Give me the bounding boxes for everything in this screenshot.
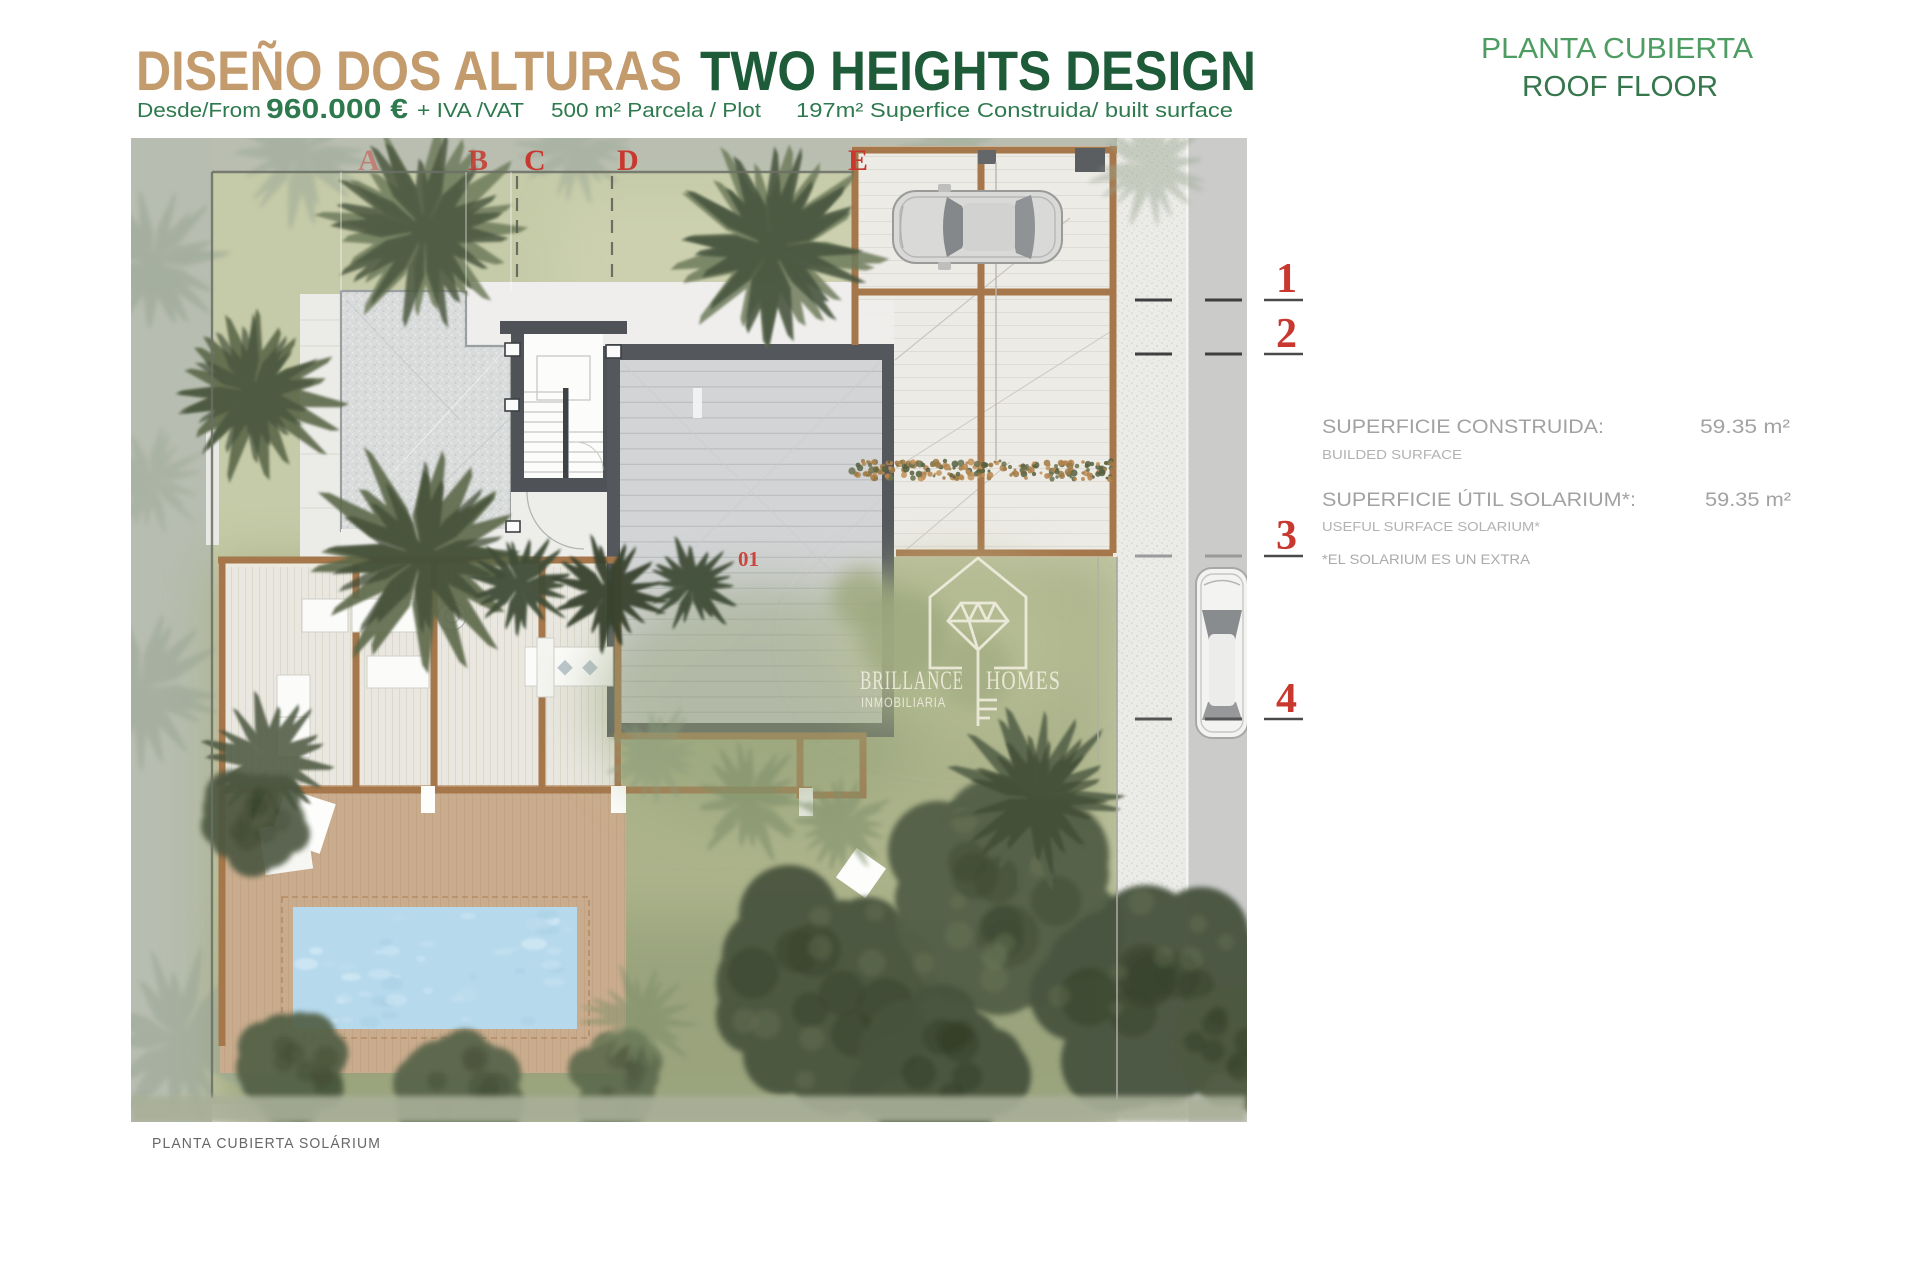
svg-text:BUILDED SURFACE: BUILDED SURFACE (1322, 447, 1462, 462)
svg-text:*EL SOLARIUM ES UN EXTRA: *EL SOLARIUM ES UN EXTRA (1322, 551, 1531, 567)
svg-text:960.000 €: 960.000 € (266, 93, 408, 124)
svg-text:59.35 m²: 59.35 m² (1700, 417, 1790, 438)
svg-text:PLANTA CUBIERTA: PLANTA CUBIERTA (1481, 33, 1754, 65)
svg-text:B: B (468, 144, 488, 177)
svg-text:01: 01 (738, 547, 759, 571)
svg-text:D: D (617, 144, 639, 177)
svg-text:C: C (524, 144, 546, 177)
svg-text:4: 4 (1276, 676, 1297, 722)
svg-text:PLANTA CUBIERTA SOLÁRIUM: PLANTA CUBIERTA SOLÁRIUM (152, 1135, 381, 1152)
svg-text:59.35 m²: 59.35 m² (1705, 490, 1791, 511)
svg-text:E: E (848, 144, 868, 177)
svg-text:2: 2 (1276, 311, 1297, 357)
svg-text:A: A (358, 144, 380, 177)
svg-text:+ IVA /VAT: + IVA /VAT (417, 100, 524, 122)
svg-text:HOMES: HOMES (986, 666, 1061, 695)
svg-text:SUPERFICIE ÚTIL SOLARIUM*:: SUPERFICIE ÚTIL SOLARIUM*: (1322, 489, 1636, 511)
svg-text:500 m² Parcela / Plot: 500 m² Parcela / Plot (551, 100, 761, 122)
svg-text:TWO HEIGHTS DESIGN: TWO HEIGHTS DESIGN (700, 39, 1256, 102)
svg-text:USEFUL SURFACE SOLARIUM*: USEFUL SURFACE SOLARIUM* (1322, 519, 1540, 534)
svg-text:INMOBILIARIA: INMOBILIARIA (861, 695, 946, 710)
svg-text:3: 3 (1276, 513, 1297, 559)
svg-text:Desde/From: Desde/From (137, 100, 261, 122)
svg-text:1: 1 (1276, 256, 1297, 302)
svg-text:ROOF FLOOR: ROOF FLOOR (1522, 71, 1718, 103)
svg-text:DISEÑO DOS ALTURAS: DISEÑO DOS ALTURAS (136, 39, 682, 102)
svg-text:SUPERFICIE CONSTRUIDA:: SUPERFICIE CONSTRUIDA: (1322, 417, 1604, 438)
svg-text:BRILLANCE: BRILLANCE (860, 666, 964, 695)
svg-text:197m² Superfice Construida/ bu: 197m² Superfice Construida/ built surfac… (796, 100, 1233, 122)
